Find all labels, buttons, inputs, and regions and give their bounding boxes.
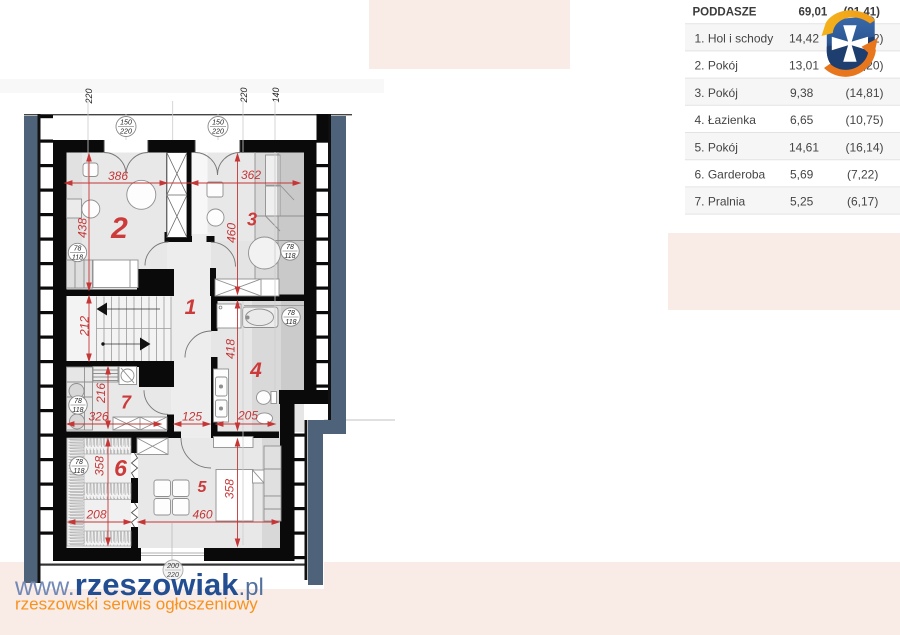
- svg-text:118: 118: [284, 253, 295, 260]
- svg-text:326: 326: [88, 410, 108, 424]
- svg-text:2. Pokój: 2. Pokój: [695, 59, 738, 73]
- svg-text:rzeszowski serwis ogłoszeniowy: rzeszowski serwis ogłoszeniowy: [15, 595, 258, 614]
- svg-text:140: 140: [271, 87, 281, 102]
- svg-text:78: 78: [287, 310, 295, 317]
- svg-text:118: 118: [72, 255, 83, 262]
- svg-text:460: 460: [225, 223, 239, 243]
- svg-text:6: 6: [114, 455, 127, 481]
- svg-text:(16,14): (16,14): [846, 140, 884, 154]
- svg-text:14,42: 14,42: [789, 32, 819, 46]
- svg-text:212: 212: [78, 316, 92, 337]
- svg-text:438: 438: [76, 218, 90, 238]
- svg-text:13,01: 13,01: [789, 59, 819, 73]
- svg-text:(7,22): (7,22): [847, 168, 878, 182]
- svg-text:125: 125: [182, 410, 202, 424]
- svg-text:78: 78: [74, 398, 82, 405]
- svg-text:150: 150: [120, 120, 132, 127]
- svg-text:118: 118: [72, 407, 83, 414]
- svg-text:14,61: 14,61: [789, 140, 819, 154]
- svg-text:6,65: 6,65: [790, 113, 814, 127]
- svg-text:220: 220: [211, 129, 224, 136]
- svg-text:3. Pokój: 3. Pokój: [695, 86, 738, 100]
- svg-text:7. Pralnia: 7. Pralnia: [695, 195, 746, 209]
- svg-text:220: 220: [84, 88, 94, 104]
- svg-text:9,38: 9,38: [790, 86, 814, 100]
- svg-text:220: 220: [239, 87, 249, 103]
- svg-text:5,69: 5,69: [790, 168, 814, 182]
- svg-text:358: 358: [223, 479, 237, 499]
- svg-text:386: 386: [108, 169, 128, 183]
- svg-text:208: 208: [85, 508, 106, 522]
- svg-text:460: 460: [192, 508, 212, 522]
- svg-text:1: 1: [185, 296, 197, 319]
- svg-text:205: 205: [237, 409, 258, 423]
- svg-text:6. Garderoba: 6. Garderoba: [695, 168, 766, 182]
- svg-text:220: 220: [119, 129, 132, 136]
- svg-text:4: 4: [249, 359, 262, 382]
- svg-text:418: 418: [224, 339, 238, 359]
- svg-text:118: 118: [285, 319, 296, 326]
- svg-text:216: 216: [94, 383, 108, 404]
- svg-text:PODDASZE: PODDASZE: [693, 7, 757, 19]
- svg-text:5: 5: [198, 479, 208, 496]
- svg-text:150: 150: [212, 120, 224, 127]
- svg-text:(14,81): (14,81): [846, 86, 884, 100]
- svg-text:362: 362: [241, 168, 261, 182]
- svg-text:(10,75): (10,75): [846, 113, 884, 127]
- svg-text:358: 358: [93, 456, 107, 476]
- svg-text:4. Łazienka: 4. Łazienka: [695, 113, 757, 127]
- svg-text:118: 118: [73, 468, 84, 475]
- svg-text:78: 78: [74, 246, 82, 253]
- svg-text:3: 3: [247, 210, 257, 230]
- svg-text:69,01: 69,01: [799, 7, 828, 19]
- svg-text:2: 2: [110, 212, 128, 245]
- svg-text:78: 78: [75, 459, 83, 466]
- svg-text:(6,17): (6,17): [847, 195, 878, 209]
- svg-text:1. Hol i schody: 1. Hol i schody: [695, 32, 774, 46]
- svg-text:7: 7: [121, 393, 132, 413]
- svg-text:5,25: 5,25: [790, 195, 814, 209]
- svg-text:78: 78: [286, 244, 294, 251]
- svg-text:5. Pokój: 5. Pokój: [695, 140, 738, 154]
